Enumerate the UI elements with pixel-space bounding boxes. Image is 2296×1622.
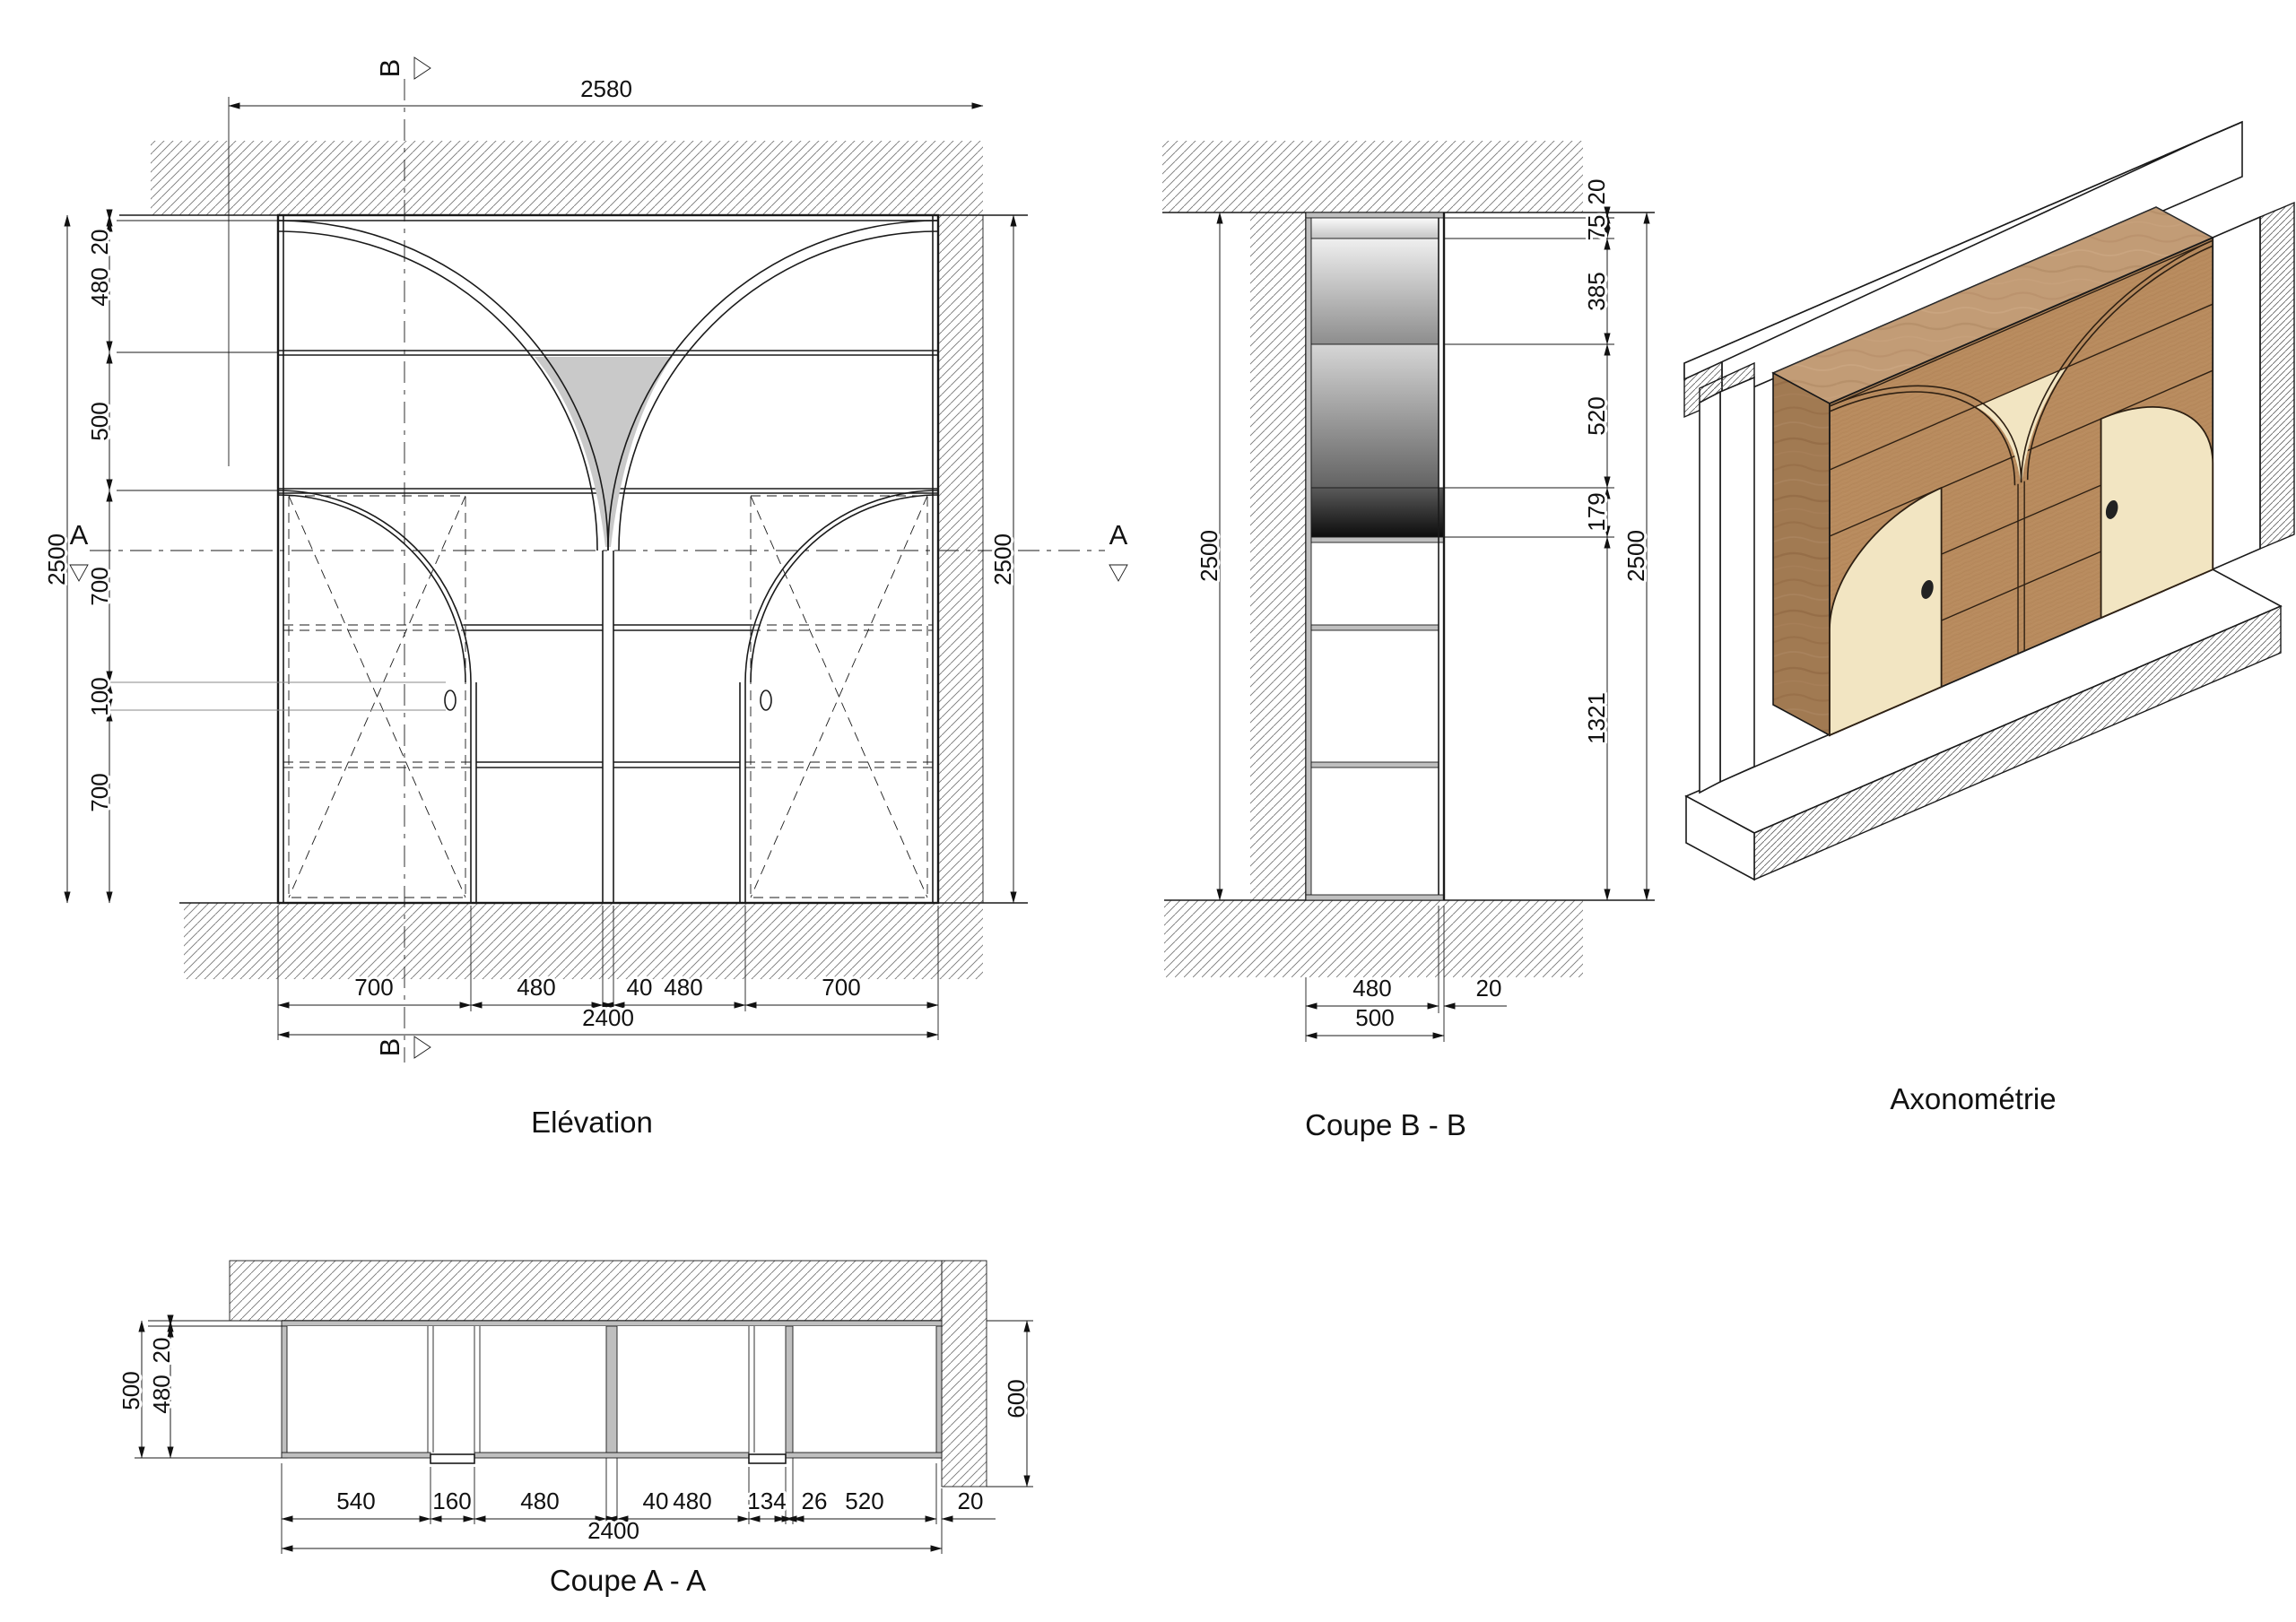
axonometrie-title: Axonométrie	[1890, 1082, 2056, 1115]
dim-aa-40: 40	[643, 1488, 669, 1514]
technical-drawing-sheet: B B A A 2580 2500 20 480	[0, 0, 2296, 1622]
dim-top-width: 2580	[580, 75, 632, 102]
elevation-view: B B A A 2580 2500 20 480	[43, 57, 1128, 1139]
coupe-a-cabinet-plan	[282, 1321, 942, 1463]
marker-b-bottom: B	[374, 1038, 405, 1057]
dim-bb-75: 75	[1583, 215, 1610, 241]
right-door-hidden-lines	[745, 496, 933, 898]
dim-aa-480c: 480	[673, 1488, 711, 1514]
elevation-doors	[90, 490, 938, 898]
section-arrow-b-bottom	[414, 1037, 430, 1058]
dim-bb-480: 480	[1352, 975, 1391, 1002]
dim-bb-520: 520	[1583, 396, 1610, 435]
dim-aa-134: 134	[747, 1488, 786, 1514]
dim-700b: 700	[86, 773, 113, 811]
dim-500: 500	[86, 402, 113, 440]
dim-bottom-total: 2400	[582, 1004, 634, 1031]
marker-a-left: A	[70, 519, 89, 551]
dim-bb-179: 179	[1583, 492, 1610, 531]
elevation-left-chain-lines	[109, 215, 278, 903]
dim-bb-right-total: 2500	[1622, 530, 1649, 582]
marker-a-right: A	[1109, 519, 1128, 551]
left-door-handle	[445, 690, 456, 710]
dim-bb-500: 500	[1355, 1004, 1394, 1031]
axo-left-wall	[1700, 363, 1754, 793]
coupe-a-view: 500 20 480 600	[117, 1261, 1033, 1597]
dim-b700b: 700	[822, 974, 860, 1001]
right-door-handle	[761, 690, 771, 710]
dim-480: 480	[86, 267, 113, 306]
dim-700a: 700	[86, 567, 113, 605]
dim-aa-480b: 480	[520, 1488, 559, 1514]
left-door-hidden-lines	[283, 496, 471, 898]
coupe-b-view: 2500 20 75 385 520 179 1321	[1162, 141, 1655, 1141]
dim-b480b: 480	[664, 974, 702, 1001]
dim-aa-480: 480	[148, 1375, 175, 1413]
marker-b-top: B	[374, 59, 405, 78]
coupe-b-title: Coupe B - B	[1305, 1108, 1466, 1141]
dim-aa-gap20: 20	[958, 1488, 984, 1514]
dim-bb-left-height: 2500	[1196, 530, 1222, 582]
dim-total-height: 2500	[43, 533, 70, 585]
coupe-b-cabinet-section	[1306, 213, 1444, 900]
dim-bb-20: 20	[1476, 975, 1502, 1002]
elevation-wall-hatch	[119, 141, 1028, 979]
section-arrow-a-right	[1109, 565, 1127, 581]
dim-aa-2400: 2400	[587, 1517, 639, 1544]
dim-20: 20	[86, 230, 113, 256]
coupe-b-ext-lines	[1444, 218, 1614, 537]
dim-aa-520: 520	[845, 1488, 883, 1514]
coupe-a-title: Coupe A - A	[550, 1564, 706, 1597]
dim-bb-top20: 20	[1583, 179, 1610, 205]
axonometric-view: Axonométrie	[1684, 122, 2294, 1115]
axo-right-wall	[2213, 203, 2294, 569]
dim-aa-600: 600	[1003, 1379, 1030, 1418]
dim-aa-26: 26	[802, 1488, 828, 1514]
dim-100: 100	[86, 677, 113, 716]
elevation-cabinet-frame	[278, 215, 938, 903]
dim-right-height: 2500	[989, 533, 1016, 585]
dim-aa-160: 160	[432, 1488, 471, 1514]
section-arrow-b-top	[414, 57, 430, 79]
dim-b480a: 480	[517, 974, 555, 1001]
dim-aa-20: 20	[148, 1338, 175, 1364]
dim-bb-385: 385	[1583, 272, 1610, 310]
drawing-canvas: B B A A 2580 2500 20 480	[0, 0, 2296, 1622]
dim-b40: 40	[627, 974, 653, 1001]
elevation-title: Elévation	[531, 1106, 653, 1139]
dim-b700a: 700	[354, 974, 393, 1001]
dim-aa-540: 540	[336, 1488, 375, 1514]
section-arrow-a-left	[70, 565, 88, 581]
dim-bb-1321: 1321	[1583, 692, 1610, 744]
dim-aa-500: 500	[117, 1371, 144, 1409]
elevation-fan-arcs	[278, 221, 938, 551]
